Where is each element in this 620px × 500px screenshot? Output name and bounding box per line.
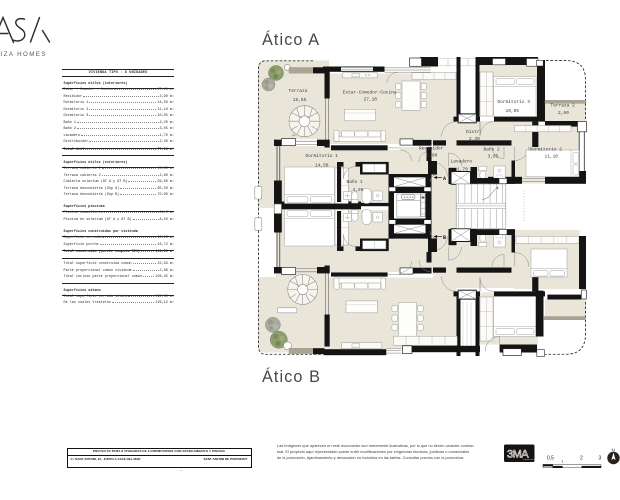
svg-text:Distr.: Distr. xyxy=(466,129,482,135)
svg-text:Lavadero: Lavadero xyxy=(451,159,473,165)
svg-text:Estar-Comedor-Cocina: Estar-Comedor-Cocina xyxy=(343,89,397,95)
svg-text:A: A xyxy=(443,176,446,182)
svg-text:Baño 1: Baño 1 xyxy=(347,179,364,185)
svg-text:15,65: 15,65 xyxy=(293,97,307,103)
svg-text:2,30: 2,30 xyxy=(469,136,480,142)
svg-text:Baño 2: Baño 2 xyxy=(484,147,501,153)
svg-text:3,05: 3,05 xyxy=(488,153,499,159)
svg-text:4,20: 4,20 xyxy=(353,187,364,193)
svg-text:Terraza 2: Terraza 2 xyxy=(551,103,576,109)
svg-text:Dormitorio 1: Dormitorio 1 xyxy=(306,153,339,159)
svg-text:14,50: 14,50 xyxy=(315,162,329,168)
svg-text:10,05: 10,05 xyxy=(506,108,520,114)
svg-text:27,10: 27,10 xyxy=(364,97,378,103)
svg-text:Dormitorio 3: Dormitorio 3 xyxy=(498,99,531,105)
svg-text:3,90: 3,90 xyxy=(427,153,438,159)
svg-text:Recibidor: Recibidor xyxy=(419,146,444,152)
svg-text:2,60: 2,60 xyxy=(558,110,569,116)
svg-text:B: B xyxy=(443,235,446,241)
svg-text:Dormitorio 2: Dormitorio 2 xyxy=(530,147,563,153)
svg-text:1,70: 1,70 xyxy=(457,166,468,172)
svg-text:Terraza: Terraza xyxy=(289,88,308,94)
svg-text:11,10: 11,10 xyxy=(545,153,559,159)
